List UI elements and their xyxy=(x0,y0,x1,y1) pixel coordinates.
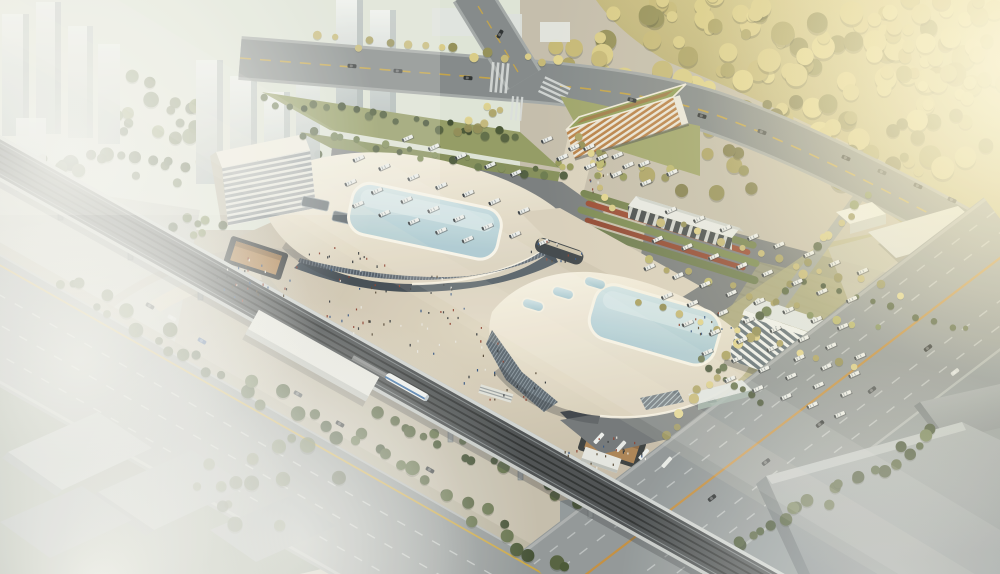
scene-svg xyxy=(0,0,1000,574)
rendering-canvas xyxy=(0,0,1000,574)
atmosphere xyxy=(0,0,1000,574)
